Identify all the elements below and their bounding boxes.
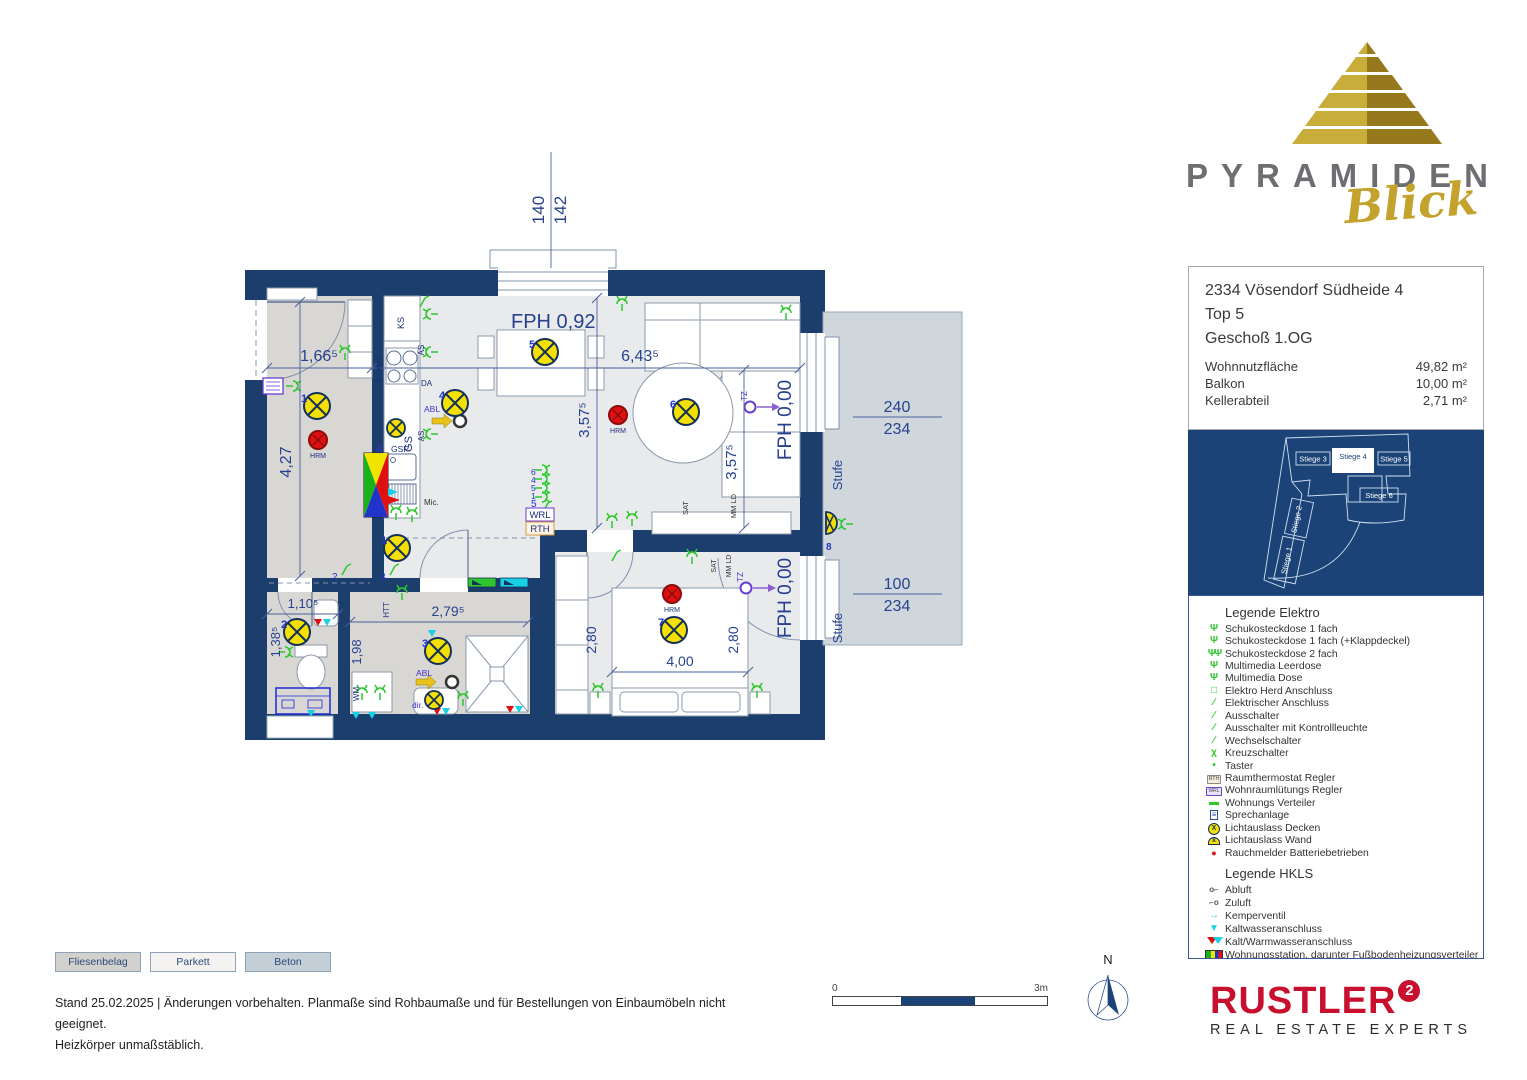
hrm-label: HRM bbox=[610, 428, 626, 435]
fixture-label: AS bbox=[417, 345, 426, 356]
light-number: 7 bbox=[658, 617, 664, 629]
switch-number: 1 bbox=[531, 491, 536, 501]
area-row: Kellerabteil 2,71 m² bbox=[1205, 392, 1467, 409]
kalt-warmwasser-icon bbox=[1207, 937, 1221, 945]
legend-item: XLichtauslass Decken bbox=[1203, 822, 1475, 834]
stiege-label: Stiege 5 bbox=[1380, 455, 1408, 464]
fixture-label: E-Herd bbox=[374, 358, 383, 382]
dim-label: 1,66⁵ bbox=[300, 348, 338, 365]
rustler-logo: RUSTLER2 REAL ESTATE EXPERTS bbox=[1210, 980, 1510, 1038]
wohnungsstation-icon bbox=[1205, 950, 1223, 959]
lichtauslass-wand-icon: x bbox=[1208, 837, 1220, 845]
fixture-label: RTH bbox=[530, 524, 549, 535]
fixture-label: KS bbox=[396, 317, 406, 329]
legend-label: Zuluft bbox=[1225, 898, 1251, 909]
fixture-label: WM bbox=[352, 687, 361, 702]
kemperventil-icon: → bbox=[1203, 911, 1225, 922]
wall-niche bbox=[267, 716, 333, 738]
dim-label: 6,43⁵ bbox=[621, 348, 659, 365]
schuko-2-icon: ΨΨ bbox=[1203, 649, 1225, 660]
ceiling-light-dir bbox=[425, 691, 443, 709]
rustler-tagline: REAL ESTATE EXPERTS bbox=[1210, 1022, 1510, 1038]
raumthermostat-icon-wrap: RTH bbox=[1203, 773, 1225, 784]
dim-label: 2,80 bbox=[725, 626, 741, 653]
fixture-label: WRL bbox=[529, 510, 550, 521]
legend-item: o⌐Abluft bbox=[1203, 884, 1475, 897]
fixture-label: TZ bbox=[736, 572, 745, 582]
dim-label: 1,10⁵ bbox=[288, 596, 319, 611]
legend-item: xLichtauslass Wand bbox=[1203, 834, 1475, 846]
abluft-icon: o⌐ bbox=[1203, 885, 1225, 896]
legend-label: Elektro Herd Anschluss bbox=[1225, 686, 1332, 697]
legend-item: ∕Wechselschalter bbox=[1203, 735, 1475, 747]
fixture-label: MM LD bbox=[726, 555, 733, 578]
scale-end-label: 3m bbox=[1034, 983, 1048, 994]
multimedia-dose-icon: Ψ bbox=[1203, 673, 1225, 684]
light-number: 1 bbox=[301, 393, 307, 405]
scale-bar-segment bbox=[901, 997, 975, 1005]
area-label: Wohnnutzfläche bbox=[1205, 358, 1298, 375]
legend-label: Kreuzschalter bbox=[1225, 748, 1289, 759]
fixture-label: ABL bbox=[424, 404, 440, 414]
wohnraumlueftung-regler-icon: WRL bbox=[1206, 787, 1221, 796]
legend-item: χKreuzschalter bbox=[1203, 747, 1475, 759]
legend-hkls-title: Legende HKLS bbox=[1225, 866, 1475, 881]
dim-label: 142 bbox=[551, 196, 570, 224]
floor-label: Geschoß 1.OG bbox=[1205, 327, 1467, 351]
legend-item: ΨMultimedia Dose bbox=[1203, 673, 1475, 685]
legend-label: Kalt/Warmwasseranschluss bbox=[1225, 937, 1352, 948]
legend-label: Sprechanlage bbox=[1225, 810, 1289, 821]
disclaimer-line1: Stand 25.02.2025 | Änderungen vorbehalte… bbox=[55, 993, 755, 1035]
dim-label: 234 bbox=[884, 598, 911, 615]
legend-item: ⌐oZuluft bbox=[1203, 897, 1475, 910]
lichtauslass-wand-icon-wrap: x bbox=[1203, 835, 1225, 846]
ceiling-light bbox=[425, 638, 451, 664]
fixture-label: DA bbox=[421, 379, 433, 388]
light-number: 3 bbox=[422, 638, 428, 650]
light-number: 2 bbox=[281, 619, 287, 631]
pyramid-icon bbox=[1292, 42, 1442, 148]
legend-label: Kaltwasseranschluss bbox=[1225, 924, 1322, 935]
legend-item: □Elektro Herd Anschluss bbox=[1203, 685, 1475, 697]
unit-number: Top 5 bbox=[1205, 303, 1467, 327]
fph-label: FPH 0,00 bbox=[775, 380, 796, 460]
legend-label: Lichtauslass Decken bbox=[1225, 823, 1320, 834]
area-label: Balkon bbox=[1205, 375, 1245, 392]
legend-item: ≡Sprechanlage bbox=[1203, 810, 1475, 822]
legend-label: Ausschalter bbox=[1225, 711, 1279, 722]
legend-item: ●Rauchmelder Batteriebetrieben bbox=[1203, 847, 1475, 859]
north-arrow: N bbox=[1085, 952, 1131, 1042]
fixture-label: SAT bbox=[681, 501, 690, 515]
ceiling-light-dir bbox=[387, 419, 405, 437]
elektrischer-anschluss-icon: ∕ bbox=[1203, 698, 1225, 709]
legend-box: Legende Elektro ΨSchukosteckdose 1 fach … bbox=[1188, 595, 1484, 959]
legend-label: Abluft bbox=[1225, 885, 1252, 896]
sprechanlage-icon: ≡ bbox=[1210, 810, 1219, 820]
bed bbox=[590, 588, 770, 716]
rustler-wordmark: RUSTLER bbox=[1210, 980, 1396, 1022]
ceiling-light bbox=[673, 399, 699, 425]
legend-label: Wechselschalter bbox=[1225, 736, 1301, 747]
ausschalter-kontrollleuchte-icon: ∕ bbox=[1203, 723, 1225, 734]
ausschalter-icon: ∕ bbox=[1203, 711, 1225, 722]
rustler-sup-badge: 2 bbox=[1398, 980, 1420, 1002]
dim-label: 3,57⁵ bbox=[723, 444, 740, 479]
raumthermostat-icon: RTH bbox=[1207, 775, 1221, 784]
dim-label: 100 bbox=[884, 576, 911, 593]
pyramidenblick-logo: PYRAMIDEN Blick bbox=[1186, 42, 1484, 260]
ceiling-light bbox=[442, 390, 468, 416]
legend-item: ∕Ausschalter bbox=[1203, 710, 1475, 722]
sprechanlage-icon-wrap: ≡ bbox=[1203, 810, 1225, 821]
legend-label: Elektrischer Anschluss bbox=[1225, 698, 1329, 709]
shower bbox=[466, 636, 528, 712]
schuko-1-klappdeckel-icon: Ψ bbox=[1203, 636, 1225, 647]
fixture-label: GSP bbox=[391, 444, 409, 454]
fph-window-label: FPH 0,92 bbox=[511, 311, 595, 333]
fixture-label: SAT bbox=[711, 559, 718, 573]
light-number: 5 bbox=[529, 339, 535, 351]
light-number: 8 bbox=[826, 542, 832, 553]
herd-anschluss-icon: □ bbox=[1203, 686, 1225, 697]
area-value: 49,82 m² bbox=[1416, 358, 1467, 375]
multimedia-leerdose-icon: Ψ bbox=[1203, 661, 1225, 672]
switch-number: 2 bbox=[332, 572, 338, 583]
legend-label: Taster bbox=[1225, 761, 1253, 772]
legend-item: ΨSchukosteckdose 1 fach (+Klappdeckel) bbox=[1203, 635, 1475, 647]
ceiling-light bbox=[384, 535, 410, 561]
legend-label: Schukosteckdose 2 fach bbox=[1225, 649, 1338, 660]
kreuzschalter-icon: χ bbox=[1203, 748, 1225, 759]
stiege-label-active: Stiege 4 bbox=[1339, 452, 1367, 461]
smoke-detector bbox=[663, 585, 681, 603]
project-address: 2334 Vösendorf Südheide 4 bbox=[1205, 279, 1467, 303]
legend-label: Kemperventil bbox=[1225, 911, 1286, 922]
disclaimer: Stand 25.02.2025 | Änderungen vorbehalte… bbox=[55, 993, 755, 1056]
lichtauslass-decken-icon-wrap: X bbox=[1203, 823, 1225, 834]
legend-label: Wohnungs Verteiler bbox=[1225, 798, 1316, 809]
wechselschalter-icon: ∕ bbox=[1203, 736, 1225, 747]
kaltwasser-icon: ▼ bbox=[1203, 924, 1225, 935]
dim-label: 3,57⁵ bbox=[576, 402, 593, 437]
stufe-label: Stufe bbox=[830, 613, 845, 643]
dim-label: 4,27 bbox=[278, 446, 295, 477]
fixture-label: Mic. bbox=[424, 498, 439, 507]
dim-label: 234 bbox=[884, 421, 911, 438]
scale-bar-track bbox=[832, 996, 1048, 1006]
zuluft-icon: ⌐o bbox=[1203, 898, 1225, 909]
legend-label: Schukosteckdose 1 fach bbox=[1225, 624, 1338, 635]
legend-item: RTHRaumthermostat Regler bbox=[1203, 772, 1475, 784]
fixture-label: AS bbox=[417, 431, 426, 442]
legend-item: ▼Kaltwasseranschluss bbox=[1203, 923, 1475, 936]
bath-abluft-symbol bbox=[446, 676, 458, 688]
site-map-drawing: Stiege 3 Stiege 4 Stiege 5 Stiege 6 Stie… bbox=[1188, 430, 1484, 595]
hrm-label: HRM bbox=[664, 607, 680, 614]
ceiling-light bbox=[661, 617, 687, 643]
legend-label: Raumthermostat Regler bbox=[1225, 773, 1335, 784]
stiege-label: Stiege 6 bbox=[1365, 491, 1393, 500]
toilet bbox=[295, 645, 327, 689]
light-number: 1 bbox=[381, 535, 387, 547]
rauchmelder-icon: ● bbox=[1203, 848, 1225, 859]
scale-start-label: 0 bbox=[832, 983, 838, 994]
area-row: Balkon 10,00 m² bbox=[1205, 375, 1467, 392]
fixture-label: TZ bbox=[740, 391, 749, 401]
fixture-label: dir. bbox=[374, 442, 384, 453]
fixture-label: HTT bbox=[382, 602, 391, 618]
legend-label: Multimedia Dose bbox=[1225, 673, 1302, 684]
taster-icon: • bbox=[1203, 761, 1225, 772]
ceiling-light bbox=[284, 619, 310, 645]
hrm-label: HRM bbox=[310, 453, 326, 460]
hall-wardrobe bbox=[348, 300, 372, 378]
dim-label: 2,80 bbox=[583, 626, 599, 653]
fixture-label: dir. bbox=[412, 700, 423, 710]
smoke-detector bbox=[609, 406, 627, 424]
flooring-chip-fliesenbelag: Fliesenbelag bbox=[55, 952, 141, 972]
wohnungsstation-icon-wrap bbox=[1203, 950, 1225, 959]
legend-label: Schukosteckdose 1 fach (+Klappdeckel) bbox=[1225, 636, 1410, 647]
legend-item: ∕Ausschalter mit Kontrollleuchte bbox=[1203, 723, 1475, 735]
fph-label: FPH 0,00 bbox=[775, 558, 796, 638]
legend-item: •Taster bbox=[1203, 760, 1475, 772]
stiege-label: Stiege 1 bbox=[1279, 546, 1294, 575]
smoke-detector bbox=[309, 431, 327, 449]
fixture-label: MM LD bbox=[729, 493, 738, 518]
flooring-legend: Fliesenbelag Parkett Beton bbox=[55, 952, 340, 972]
switch-number: 3 bbox=[380, 572, 386, 583]
legend-item: ∕Elektrischer Anschluss bbox=[1203, 698, 1475, 710]
fixture-label: ABL bbox=[416, 668, 432, 678]
sprechanlage-symbol bbox=[263, 378, 283, 394]
area-value: 10,00 m² bbox=[1416, 375, 1467, 392]
dim-label: 140 bbox=[529, 196, 548, 224]
sideboard bbox=[652, 512, 791, 534]
dim-label: 1,38⁵ bbox=[268, 627, 283, 658]
schuko-1-icon: Ψ bbox=[1203, 624, 1225, 635]
stufe-label: Stufe bbox=[830, 460, 845, 490]
window-top bbox=[490, 250, 616, 296]
legend-label: Lichtauslass Wand bbox=[1225, 835, 1312, 846]
floor-plan-page: 140 142 FPH 0,92 1,66⁵ 6,43⁵ 4,27 3,57⁵ … bbox=[0, 0, 1527, 1080]
legend-label: Multimedia Leerdose bbox=[1225, 661, 1321, 672]
legend-item: Wohnungsstation, darunter Fußbodenheizun… bbox=[1203, 949, 1475, 959]
legend-elektro-title: Legende Elektro bbox=[1225, 605, 1475, 620]
wohnraumlueftung-regler-icon-wrap: WRL bbox=[1203, 785, 1225, 796]
legend-item: ΨΨSchukosteckdose 2 fach bbox=[1203, 648, 1475, 660]
disclaimer-line2: Heizkörper unmaßstäblich. bbox=[55, 1035, 755, 1056]
legend-item: Kalt/Warmwasseranschluss bbox=[1203, 936, 1475, 949]
flooring-chip-parkett: Parkett bbox=[150, 952, 236, 972]
stiege-label: Stiege 2 bbox=[1289, 505, 1304, 534]
dim-label: 1,98 bbox=[349, 639, 364, 664]
hall-shelf bbox=[267, 288, 317, 300]
legend-item: ΨMultimedia Leerdose bbox=[1203, 660, 1475, 672]
legend-label: Wohnungsstation, darunter Fußbodenheizun… bbox=[1225, 950, 1478, 959]
dim-label: 240 bbox=[884, 399, 911, 416]
legend-item: →Kemperventil bbox=[1203, 910, 1475, 923]
site-map: Stiege 3 Stiege 4 Stiege 5 Stiege 6 Stie… bbox=[1188, 430, 1484, 595]
ceiling-light bbox=[532, 339, 558, 365]
wohnungs-verteiler-icon: ▬ bbox=[1203, 798, 1225, 809]
light-number: 4 bbox=[439, 390, 446, 402]
unit-info-box: 2334 Vösendorf Südheide 4 Top 5 Geschoß … bbox=[1188, 266, 1484, 430]
area-label: Kellerabteil bbox=[1205, 392, 1269, 409]
area-value: 2,71 m² bbox=[1423, 392, 1467, 409]
north-label: N bbox=[1085, 952, 1131, 967]
compass-icon bbox=[1085, 967, 1131, 1027]
legend-label: Wohnraumlütungs Regler bbox=[1225, 785, 1343, 796]
legend-label: Ausschalter mit Kontrollleuchte bbox=[1225, 723, 1368, 734]
legend-label: Rauchmelder Batteriebetrieben bbox=[1225, 848, 1369, 859]
legend-item: WRLWohnraumlütungs Regler bbox=[1203, 785, 1475, 797]
flooring-chip-beton: Beton bbox=[245, 952, 331, 972]
kalt-warmwasser-icon-wrap bbox=[1203, 937, 1225, 948]
lichtauslass-decken-icon: X bbox=[1208, 823, 1220, 835]
area-row: Wohnnutzfläche 49,82 m² bbox=[1205, 358, 1467, 375]
light-number: 6 bbox=[670, 399, 676, 411]
ceiling-light bbox=[304, 393, 330, 419]
legend-item: ▬Wohnungs Verteiler bbox=[1203, 797, 1475, 809]
stiege-label: Stiege 3 bbox=[1299, 455, 1327, 464]
scale-bar: 0 3m bbox=[832, 983, 1048, 1011]
dim-label: 2,79⁵ bbox=[431, 603, 464, 619]
dim-label: 4,00 bbox=[666, 653, 693, 669]
legend-item: ΨSchukosteckdose 1 fach bbox=[1203, 623, 1475, 635]
